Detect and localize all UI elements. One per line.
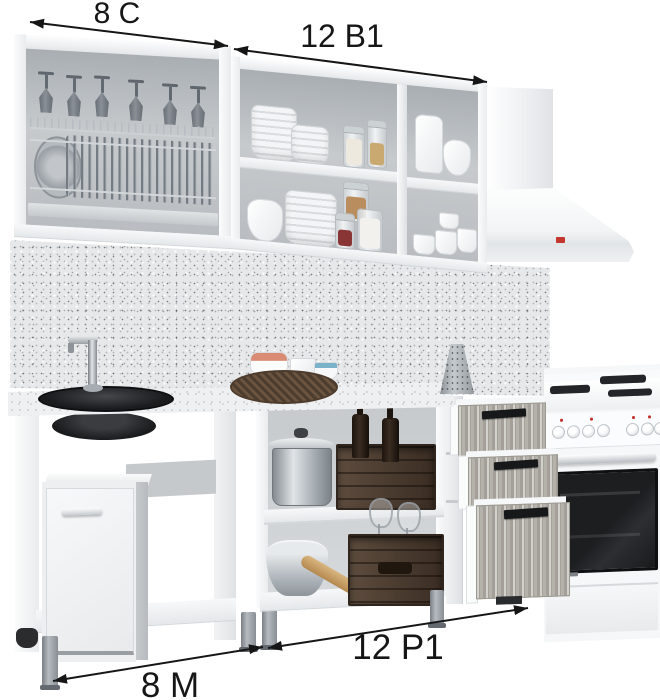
glass-jar-white [357,208,383,253]
pitcher [415,114,443,175]
sink-cabinet-cupboard-shadow [134,482,148,660]
oven-handle [548,452,656,465]
drawer-foot [496,596,522,605]
bowl-stack [285,189,337,248]
cabinet-foot-black [16,628,38,648]
wicker-basket [230,370,338,404]
cabinet-right-side [478,80,487,273]
wine-bottle [382,418,399,462]
faucet-base [83,384,103,392]
glass-jar-berries [335,212,355,250]
dimension-label-base-left: 8 М [141,666,199,700]
sink-rim [38,386,174,412]
bowl-stack [291,124,329,166]
wall-open-shelf-cabinet [231,56,487,273]
sink-bowl-underside [52,412,156,440]
cup [435,230,457,256]
cabinet-left-side [231,56,240,249]
glass-jar [367,119,387,169]
cup [457,228,477,254]
burner [550,385,590,395]
crate-handle-slot [378,562,412,574]
hood-logo [556,237,565,243]
wine-glass-bowl [37,87,55,113]
stove-knob [654,422,660,435]
pot-lid-knob [294,428,308,438]
cupboard-door-handle [62,507,102,515]
cabinet-left-side [14,34,26,237]
work-cabinet-left-side [256,404,268,608]
wine-glass [36,71,56,116]
wine-glass [126,79,146,124]
wine-bottle [352,414,369,458]
wine-glass [160,83,180,128]
faucet-spout [68,343,74,353]
wine-glass [64,75,84,120]
dimension-line-base-right [268,608,528,648]
dimension-label-wall-left: 8 С [94,0,141,30]
hood-canopy [464,188,634,262]
drawer-bottom [466,494,568,610]
cup [439,212,459,230]
cabinet-leg [430,590,444,624]
cabinet-leg [241,612,256,648]
faucet-column [88,340,97,390]
cabinet-divider [397,84,407,255]
dimension-label-wall-right: 12 В1 [300,18,384,54]
wine-glass-stem [45,75,48,89]
hood-chimney-duct [487,87,553,195]
cup [413,234,435,256]
wall-dish-dryer-cabinet [14,34,231,248]
wine-glass [92,75,112,120]
dimension-label-base-right: 12 Р1 [352,628,443,667]
wine-glass [188,86,208,131]
glass-jar [343,125,365,169]
cabinet-right-side [219,45,231,248]
kitchen-product-image: 8 С 12 В1 8 М 12 Р1 [0,0,660,700]
cabinet-leg [42,636,58,686]
cooking-pot [272,448,332,506]
cabinet-leg [262,610,277,646]
